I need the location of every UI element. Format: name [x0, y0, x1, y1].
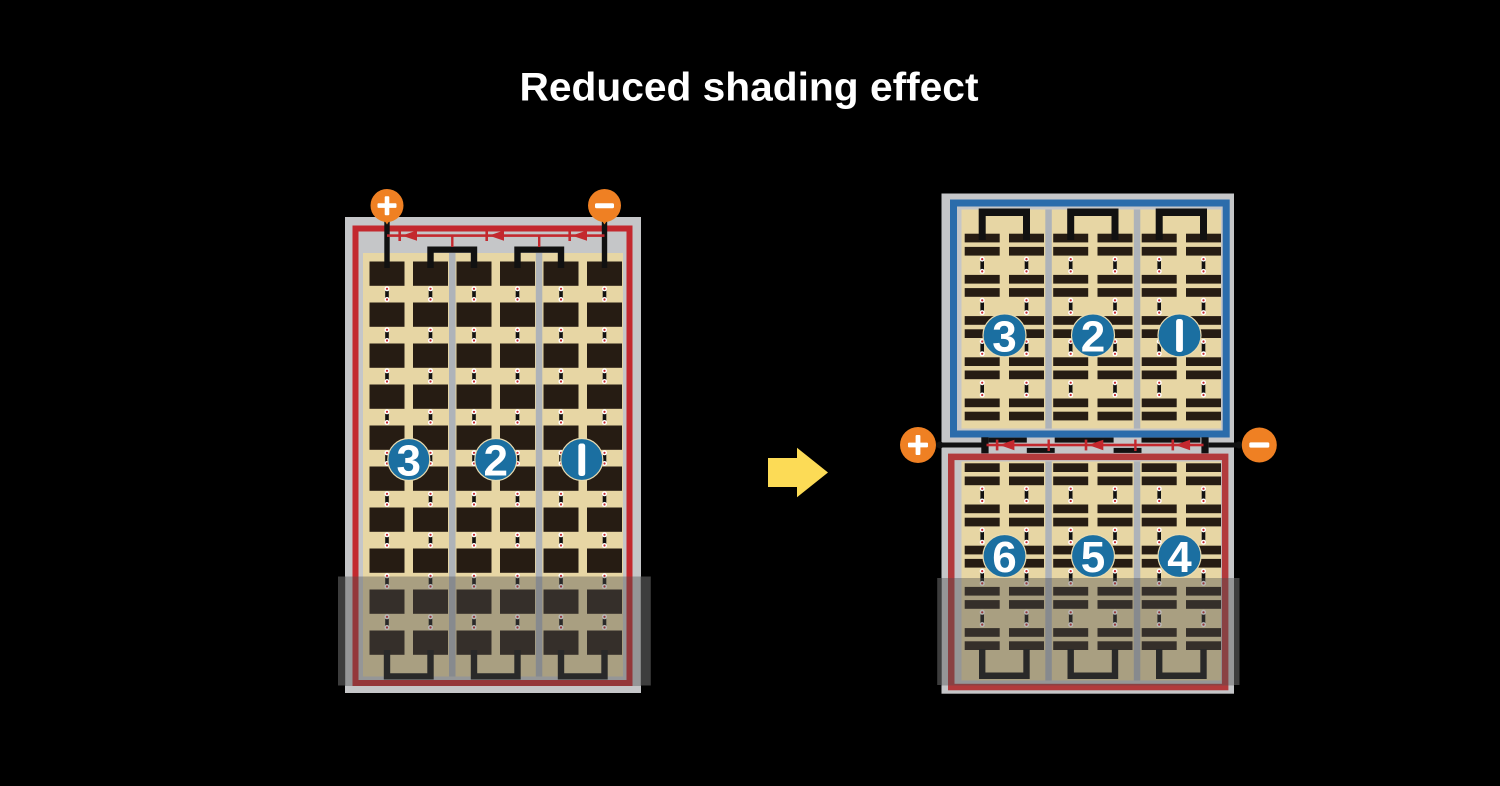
svg-text:6: 6	[992, 533, 1016, 582]
svg-text:Reduced shading effect: Reduced shading effect	[520, 66, 979, 110]
svg-text:2: 2	[484, 437, 508, 486]
svg-text:2: 2	[1081, 313, 1105, 362]
svg-text:4: 4	[1167, 533, 1192, 582]
svg-text:3: 3	[397, 437, 421, 486]
svg-text:5: 5	[1081, 533, 1105, 582]
svg-text:3: 3	[992, 313, 1016, 362]
